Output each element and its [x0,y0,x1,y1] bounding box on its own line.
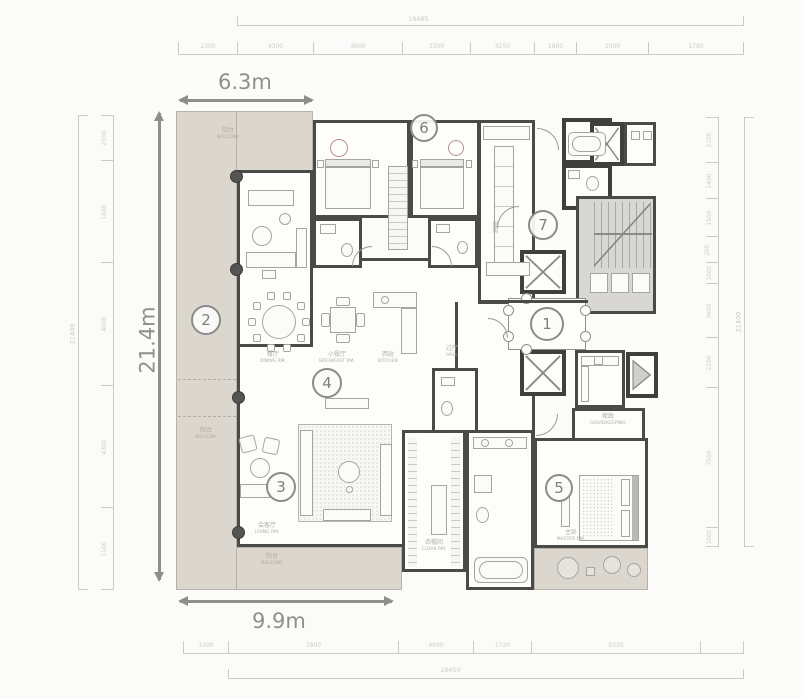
dining-chair [253,302,261,310]
wardrobe-strip [388,166,408,250]
bottom-total-dim: 18450 [440,666,461,674]
top-dim-chain: 2300 4300 3600 3300 3250 1900 2000 1780 [178,42,744,55]
dining-chair [283,344,291,352]
floor-plan-canvas: 19465 2300 4300 3600 3300 3250 1900 2000… [0,0,804,698]
interior-wall [455,302,458,370]
right-total-dim: 21400 [734,312,742,333]
dim-segment: 1780 [648,42,744,55]
bed-headboard [325,159,371,167]
lobby-scallop [521,344,532,355]
bed-blanket [582,478,614,538]
label-balcony-left: 阳台BALCONY [182,428,230,440]
bathtub-inner [572,136,601,152]
dining-chair [297,302,305,310]
bed-headboard [420,159,464,167]
dim-segment: 1400 [706,162,719,198]
sofa-left [300,430,313,516]
terrace-table [586,567,595,576]
sink [436,224,450,233]
bottom-width-arrow [180,600,392,603]
dim-segment: 1800 [101,160,114,262]
door-arc [537,128,559,150]
dim-segment: 4300 [101,385,114,507]
dim-segment: 2000 [576,42,648,55]
dining-chair [248,318,256,326]
sink [481,439,489,447]
toilet [586,176,599,191]
balcony-left-strip [176,111,237,590]
marker-6-bedrooms: 6 [410,114,438,142]
dim-segment: 4300 [237,42,313,55]
study-chair [262,270,276,279]
door-arc [536,414,558,436]
terrace-chair [627,563,641,577]
expansion-dashed-line [178,379,236,380]
marker-2-balcony: 2 [191,305,221,335]
landing-cabinet [590,273,608,293]
dim-segment: 2500 [101,115,114,160]
study-cabinet [296,228,307,268]
west-kitchen-counter [401,308,417,354]
column [230,170,243,183]
label-kitchen: 厨房 [490,212,497,242]
dim-segment [700,641,744,654]
study-desk [246,252,296,268]
counter [581,366,589,402]
left-height-label: 21.4m [136,306,160,373]
service-elevator [626,352,658,398]
landing-cabinet [611,273,629,293]
marker-3-living-room: 3 [266,472,296,502]
shaft-top-right [624,122,656,166]
washer [594,356,603,365]
dining-chair [297,334,305,342]
landing-cabinet [632,273,650,293]
label-balcony-top: 阳台BALCONY [205,128,251,140]
stair-core [576,196,656,314]
kitchen-counter-top [483,126,530,140]
elevator-triangle-icon [630,356,654,394]
right-dim-chain: 2100 1400 1500 200 1000 3600 2200 7500 1… [706,117,719,547]
powder-room [432,368,478,438]
sink [320,224,336,234]
coffee-table [338,461,360,483]
pillow [621,479,630,506]
column [232,391,245,404]
study-sofa [248,190,294,206]
label-hall: 过厅HALL [430,346,474,358]
dining-chair [302,318,310,326]
sink [505,439,513,447]
dim-segment: 1000 [706,527,719,547]
breakfast-chair [321,313,330,327]
dim-segment: 4600 [398,641,473,654]
lobby-scallop [580,331,591,342]
dim-segment: 1000 [706,262,719,283]
bottom-width-label: 9.9m [252,609,306,633]
dim-segment: 7500 [706,387,719,527]
sink [441,377,455,386]
bottom-total-dim-line [228,669,744,679]
dining-chair [253,334,261,342]
dim-segment: 1000 [183,641,228,654]
dim-segment: 3250 [470,42,534,55]
dim-segment: 2300 [178,42,237,55]
marker-5-master-bedroom: 5 [545,474,573,502]
breakfast-chair [356,313,365,327]
master-bathroom [466,430,534,590]
west-kitchen-counter [373,292,417,308]
bathtub [568,132,606,156]
dim-segment: 1500 [706,198,719,236]
expansion-dashed-line [178,416,236,417]
marker-4-dining-area: 4 [312,368,342,398]
dining-chair [267,292,275,300]
bathtub-inner [479,561,523,579]
top-total-dim: 19465 [408,15,429,23]
fixture [643,131,652,140]
breakfast-chair [336,297,350,306]
label-west-kitchen: 西厨KITCHEN [366,352,410,364]
nightstand [466,160,472,168]
dim-segment: 1720 [473,641,531,654]
left-total-dim-line [78,115,88,590]
breakfast-table [330,307,356,333]
laundry-room [575,350,625,408]
label-balcony-bottom: 阳台BALCONY [248,554,296,566]
dim-segment: 4000 [101,262,114,385]
left-dim-chain: 2500 1800 4000 4300 1100 [101,115,114,590]
nightstand [317,160,324,168]
headboard [632,476,638,540]
nightstand [372,160,379,168]
label-housekeeping: 家政HOUSEKEEPING [578,414,638,426]
dim-segment: 2100 [706,117,719,162]
top-total-dim-line [237,16,744,26]
label-cloak: 衣帽间CLOAK RM. [408,540,460,552]
terrace-chair [557,557,579,579]
column [230,263,243,276]
armchair [262,437,281,456]
dim-segment: 1900 [534,42,576,55]
dim-segment: 2200 [706,337,719,387]
dim-segment: 3300 [402,42,470,55]
coffee-table-small [346,486,353,493]
dining-table-round [262,305,296,339]
console-table [325,398,369,409]
label-dining: 餐厅DINING RM. [250,352,296,364]
bottom-dim-chain: 1000 7800 4600 1720 5330 [183,641,744,654]
media-console [323,509,371,521]
top-width-label: 6.3m [218,70,272,94]
kitchen-counter-bottom [486,262,530,276]
toilet [457,241,468,254]
toilet [441,401,453,416]
dim-segment: 3600 [313,42,402,55]
label-breakfast: 小餐厅BREAKFAST RM. [314,352,360,364]
dim-segment: 7800 [228,641,398,654]
nightstand [412,160,418,168]
dim-segment: 200 [706,236,719,262]
marker-7-kitchen-hall: 7 [528,210,558,240]
pillow [621,510,630,537]
left-total-dim: 21400 [68,324,76,345]
elevator-lower [520,350,566,396]
interior-wall [478,300,588,303]
bed [420,167,464,209]
west-kitchen-sink [381,296,389,304]
closet-island [431,485,447,535]
dim-segment: 1100 [101,507,114,590]
lobby-scallop [503,305,514,316]
plant [330,139,348,157]
sink [568,170,580,179]
label-living: 会客厅LIVING RM. [240,523,294,535]
sofa-right [380,444,392,516]
study-side-table [279,213,291,225]
terrace-chair [603,556,621,574]
breakfast-chair [336,334,350,343]
stair-treads [594,202,652,268]
round-chair [250,458,270,478]
lobby-scallop [580,305,591,316]
toilet [341,243,353,257]
dining-chair [283,292,291,300]
dim-segment: 3600 [706,283,719,337]
marker-1-elevator-lobby: 1 [530,307,564,341]
label-master: 主卧MASTER RM. [548,530,594,542]
stair-diagonal [594,202,652,268]
balcony-top-block [236,111,313,171]
elevator-x-icon [524,354,562,392]
top-width-arrow [180,99,312,102]
study-round-chair [252,226,272,246]
right-total-dim-line [744,117,754,547]
bathtub [474,557,528,583]
stair-landing-line [594,233,652,235]
toilet [476,507,489,523]
fixture [631,131,640,140]
shower [474,475,492,493]
bed [325,167,371,209]
dim-segment: 5330 [531,641,700,654]
plant [448,140,464,156]
